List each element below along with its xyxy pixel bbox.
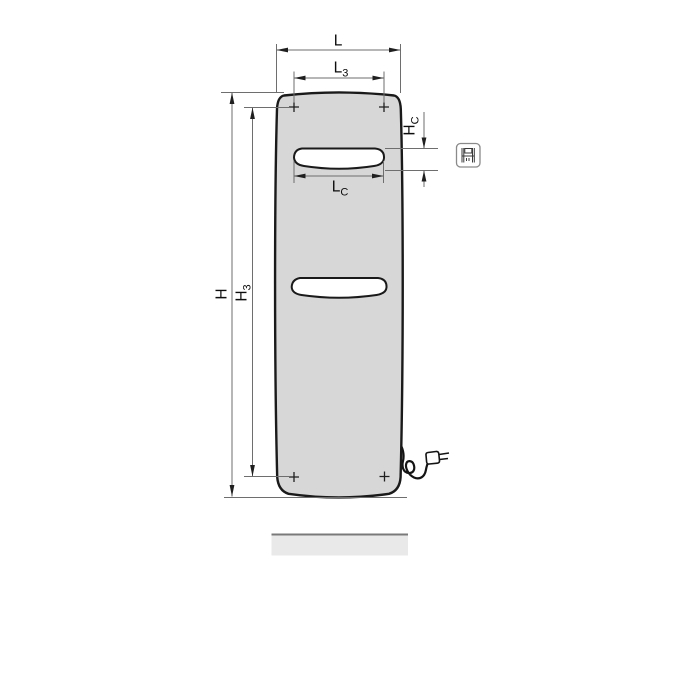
- radiator-schematic-icon: [457, 144, 481, 168]
- floor-strip-fill: [272, 536, 409, 556]
- dim-label-L: L: [334, 33, 343, 49]
- grip-slot-upper: [294, 149, 384, 169]
- dim-label-H: H: [214, 288, 230, 299]
- grip-slot-lower: [292, 278, 387, 298]
- power-cable: [399, 441, 430, 478]
- plug-pin: [439, 453, 449, 455]
- dim-label-H3: H3: [234, 284, 250, 301]
- plug-pin: [440, 459, 449, 460]
- drawing-svg: [0, 0, 700, 700]
- dim-label-HC: HC: [402, 116, 418, 135]
- floor-strip: [272, 535, 409, 556]
- dim-label-L3: L3: [334, 60, 349, 76]
- dim-label-LC: LC: [332, 179, 349, 195]
- power-plug: [426, 451, 449, 464]
- dimension-drawing: L L3 H H3 HC LC: [0, 0, 700, 700]
